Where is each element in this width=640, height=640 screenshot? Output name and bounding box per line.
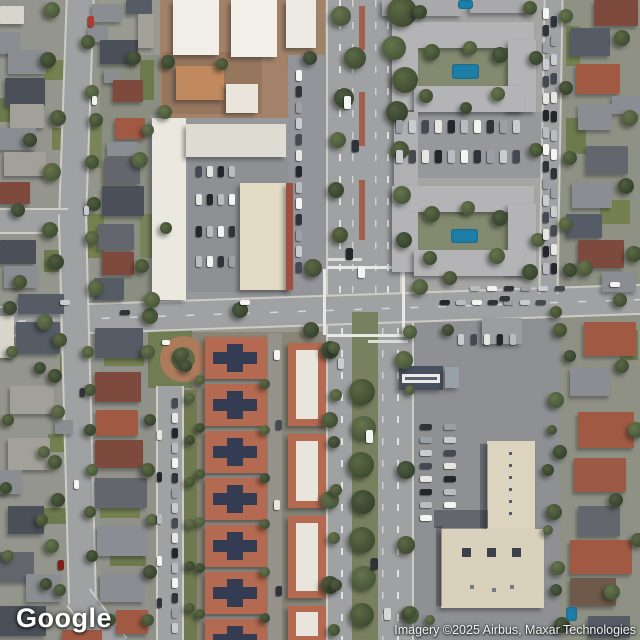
tree <box>559 9 573 23</box>
roof-detail <box>296 612 318 636</box>
house <box>55 420 73 434</box>
car <box>80 388 85 397</box>
commercial-building-edge <box>286 183 293 290</box>
car <box>58 560 64 570</box>
tree <box>330 132 346 148</box>
tree <box>403 325 417 339</box>
roof-detail <box>509 500 512 503</box>
satellite-map[interactable]: Google Imagery ©2025 Airbus, Maxar Techn… <box>0 0 640 640</box>
imagery-attribution: Imagery ©2025 Airbus, Maxar Technologies <box>394 623 636 637</box>
parked-car <box>172 458 178 468</box>
tree <box>48 254 64 270</box>
roof-detail <box>227 579 243 607</box>
tree <box>542 464 554 476</box>
parked-car <box>435 120 442 133</box>
car <box>240 300 250 305</box>
parked-car <box>420 424 432 430</box>
tree <box>185 393 195 403</box>
tree <box>609 493 623 507</box>
tree <box>84 506 96 518</box>
parked-car <box>543 110 549 121</box>
tree <box>396 232 412 248</box>
parked-car <box>157 430 162 440</box>
tree <box>48 455 62 469</box>
tree <box>424 44 440 60</box>
parked-car <box>504 286 514 291</box>
tree <box>404 606 416 618</box>
tree <box>82 346 94 358</box>
tree <box>44 2 60 18</box>
car <box>344 96 351 109</box>
tree <box>43 163 61 181</box>
parked-car <box>536 300 546 305</box>
tree <box>547 425 557 435</box>
tree <box>260 379 270 389</box>
tree <box>81 35 95 49</box>
tree <box>543 525 553 535</box>
tree <box>395 351 413 369</box>
tree <box>6 346 18 358</box>
tree <box>550 584 562 596</box>
parked-car <box>444 502 456 508</box>
parked-car <box>157 514 162 524</box>
house <box>0 182 30 204</box>
parked-car <box>500 150 507 163</box>
tree <box>523 1 537 15</box>
tree <box>529 51 543 65</box>
car <box>274 350 280 360</box>
parked-car <box>420 502 432 508</box>
tree <box>42 222 58 238</box>
parked-car <box>296 134 302 145</box>
tree <box>48 369 62 383</box>
parked-car <box>551 149 557 160</box>
swimming-pool <box>451 229 478 243</box>
parked-car <box>218 226 224 237</box>
parked-car <box>296 246 302 257</box>
tree <box>38 446 50 458</box>
tree <box>260 473 270 483</box>
tree <box>195 517 205 527</box>
parked-car <box>470 286 480 291</box>
house <box>95 440 143 468</box>
tree <box>551 561 565 575</box>
tree <box>45 539 59 553</box>
parked-car <box>551 111 557 122</box>
parked-car <box>296 262 302 273</box>
tree <box>23 133 37 147</box>
parked-car <box>543 195 549 206</box>
parked-car <box>551 16 557 27</box>
tree <box>303 51 317 65</box>
house <box>5 78 45 106</box>
construction-building <box>286 0 316 48</box>
parked-car <box>461 120 468 133</box>
road-marking <box>327 334 411 337</box>
parked-car <box>420 437 432 443</box>
tree <box>40 52 56 68</box>
road-marking <box>368 340 408 343</box>
swimming-pool <box>458 0 473 9</box>
parked-car <box>172 488 178 498</box>
parked-car <box>513 150 520 163</box>
tree <box>491 87 505 101</box>
parked-car <box>422 150 429 163</box>
white-building <box>226 84 258 113</box>
house <box>576 64 620 94</box>
tree <box>460 102 472 114</box>
swimming-pool <box>566 607 577 621</box>
house <box>95 478 147 508</box>
tree <box>330 484 342 496</box>
parked-car <box>474 150 481 163</box>
tree <box>2 414 14 426</box>
car <box>274 500 280 510</box>
tree <box>330 389 342 401</box>
tree <box>413 5 427 19</box>
car <box>346 248 353 260</box>
roof-detail <box>510 585 514 589</box>
parked-car <box>196 226 202 237</box>
tree <box>143 565 157 579</box>
tree <box>328 182 344 198</box>
roof-detail <box>296 350 318 419</box>
roof-detail <box>436 526 442 606</box>
roof-detail <box>227 626 243 640</box>
small-building <box>445 367 459 388</box>
parked-car <box>396 120 403 133</box>
tree <box>303 322 319 338</box>
tree <box>37 314 53 330</box>
tree <box>522 264 538 280</box>
tree <box>489 248 505 264</box>
tree <box>577 260 593 276</box>
tree <box>563 263 577 277</box>
tree <box>141 463 155 477</box>
parked-car <box>551 225 557 236</box>
parked-car <box>444 437 456 443</box>
parked-car <box>172 503 178 513</box>
parked-car <box>207 226 213 237</box>
tree <box>564 350 576 362</box>
road-marking <box>328 258 362 261</box>
roof-detail <box>487 548 496 557</box>
parked-car <box>172 563 178 573</box>
road-marking <box>402 272 405 334</box>
house <box>586 146 628 174</box>
parked-car <box>157 598 162 608</box>
office-building <box>152 118 186 300</box>
tree <box>332 227 348 243</box>
tree <box>40 578 52 590</box>
parked-car <box>229 194 235 205</box>
tree <box>382 36 406 60</box>
parked-car <box>513 120 520 133</box>
retail-building <box>441 529 544 608</box>
house <box>115 118 145 139</box>
parked-car <box>520 300 530 305</box>
tree <box>88 280 104 296</box>
tree <box>461 201 475 215</box>
parked-car <box>488 300 498 305</box>
parked-car <box>543 59 549 70</box>
roof-detail <box>509 476 512 479</box>
car <box>366 430 373 443</box>
tree <box>36 514 48 526</box>
tree <box>127 51 141 65</box>
tree <box>0 482 12 494</box>
parked-car <box>448 150 455 163</box>
tile-roof-building <box>176 66 224 100</box>
tree <box>412 279 428 295</box>
roof-detail <box>509 488 512 491</box>
house <box>572 182 612 208</box>
parked-car <box>172 443 178 453</box>
parked-car <box>472 300 482 305</box>
parked-car <box>461 150 468 163</box>
parked-car <box>172 398 178 408</box>
parked-car <box>543 246 549 257</box>
car <box>60 300 70 305</box>
car <box>500 296 510 301</box>
tree <box>492 210 508 226</box>
tree <box>195 563 205 573</box>
parked-car <box>420 515 432 521</box>
road-marking <box>359 92 365 146</box>
tree <box>216 58 228 70</box>
parked-car <box>435 150 442 163</box>
tree <box>85 231 99 245</box>
tree <box>350 603 374 627</box>
tree <box>604 584 620 600</box>
tree <box>419 89 433 103</box>
tree <box>53 333 67 347</box>
house <box>570 368 610 396</box>
tree <box>144 292 160 308</box>
parked-car <box>296 230 302 241</box>
house <box>95 372 141 402</box>
tree <box>51 493 65 507</box>
tree <box>11 203 25 217</box>
parked-car <box>296 182 302 193</box>
tree <box>559 217 573 231</box>
tree <box>89 113 103 127</box>
house <box>102 252 134 275</box>
car <box>338 358 344 369</box>
house <box>578 506 620 536</box>
tree <box>393 186 411 204</box>
parked-car <box>296 198 302 209</box>
office-building <box>186 124 286 157</box>
parked-car <box>172 593 178 603</box>
tree <box>615 359 629 373</box>
tree <box>185 603 195 613</box>
tree <box>85 155 99 169</box>
tree <box>50 110 66 126</box>
roof-detail <box>509 452 512 455</box>
tree <box>328 532 340 544</box>
house <box>92 4 122 22</box>
car <box>84 206 89 215</box>
parked-car <box>420 450 432 456</box>
parked-car <box>551 54 557 65</box>
parked-car <box>543 144 549 155</box>
tree <box>141 345 155 359</box>
parked-car <box>420 489 432 495</box>
tree <box>397 461 415 479</box>
parked-car <box>543 229 549 240</box>
house <box>4 152 46 176</box>
tree <box>559 81 573 95</box>
tree <box>351 490 375 514</box>
car <box>92 96 97 105</box>
tree <box>195 469 205 479</box>
house <box>100 574 144 602</box>
tree <box>553 323 567 337</box>
house <box>0 6 24 24</box>
swimming-pool <box>452 64 479 79</box>
roof-detail <box>296 441 318 501</box>
tree <box>492 47 508 63</box>
roof-detail <box>227 344 243 372</box>
house <box>570 28 610 56</box>
tree <box>142 614 154 626</box>
car <box>352 140 359 152</box>
car <box>276 420 282 430</box>
tree <box>260 425 270 435</box>
car <box>358 266 365 278</box>
tree <box>144 414 156 426</box>
parked-car <box>551 206 557 217</box>
tree <box>161 55 175 69</box>
tree <box>553 445 567 459</box>
roof-detail <box>296 523 318 591</box>
tree <box>195 375 205 385</box>
parked-car <box>555 286 565 291</box>
parked-car <box>551 187 557 198</box>
parked-car <box>543 8 549 19</box>
roof-detail <box>470 585 474 589</box>
apartment-building <box>470 0 528 13</box>
car <box>88 16 94 27</box>
roof-detail <box>480 444 488 528</box>
parked-car <box>543 127 549 138</box>
car <box>610 282 620 287</box>
car <box>162 340 170 345</box>
car <box>384 608 391 620</box>
tree <box>628 422 640 438</box>
parked-car <box>543 178 549 189</box>
parked-car <box>487 150 494 163</box>
parked-car <box>444 489 456 495</box>
parked-car <box>551 263 557 274</box>
car <box>276 586 282 596</box>
parked-car <box>172 428 178 438</box>
parked-car <box>396 150 403 163</box>
house <box>113 80 143 102</box>
parked-car <box>500 120 507 133</box>
construction-building <box>231 0 277 57</box>
parked-car <box>172 548 178 558</box>
parked-car <box>296 150 302 161</box>
parked-car <box>543 263 549 274</box>
parked-car <box>218 166 224 177</box>
roof-detail <box>462 548 471 557</box>
tree <box>405 385 415 395</box>
road-marking <box>359 180 365 240</box>
tree <box>260 567 270 577</box>
parked-car <box>456 300 466 305</box>
tree <box>160 222 172 234</box>
parked-car <box>229 256 235 267</box>
parked-car <box>196 256 202 267</box>
tree <box>135 259 149 273</box>
parked-car <box>196 194 202 205</box>
tree <box>185 561 195 571</box>
house <box>102 186 144 216</box>
parked-car <box>551 35 557 46</box>
house <box>138 14 154 48</box>
parked-car <box>218 256 224 267</box>
parked-car <box>172 518 178 528</box>
parked-car <box>471 334 477 345</box>
tree <box>13 275 27 289</box>
parked-car <box>543 161 549 172</box>
road-marking <box>359 6 365 50</box>
house <box>594 0 638 26</box>
tree <box>423 251 437 265</box>
roof-detail <box>227 438 243 466</box>
house <box>96 410 138 436</box>
house <box>97 526 147 556</box>
tree <box>86 464 98 476</box>
tree <box>622 110 638 126</box>
tree <box>618 178 634 194</box>
car <box>371 558 378 570</box>
parked-car <box>497 334 503 345</box>
tree <box>3 301 17 315</box>
tree <box>180 360 192 372</box>
parked-car <box>538 286 548 291</box>
parked-car <box>420 476 432 482</box>
parked-car <box>487 120 494 133</box>
road-marking <box>323 269 326 335</box>
parked-car <box>551 73 557 84</box>
car <box>120 310 130 315</box>
parked-car <box>551 168 557 179</box>
car <box>74 480 79 489</box>
parked-car <box>444 463 456 469</box>
parked-car <box>296 102 302 113</box>
parked-car <box>551 92 557 103</box>
parked-car <box>551 244 557 255</box>
parked-car <box>172 413 178 423</box>
roof-detail <box>227 485 243 513</box>
parked-car <box>296 166 302 177</box>
parked-car <box>448 120 455 133</box>
tree <box>529 143 543 157</box>
tree <box>442 324 454 336</box>
tree <box>2 550 14 562</box>
google-logo[interactable]: Google <box>16 603 112 634</box>
parked-car <box>444 424 456 430</box>
tree <box>87 197 101 211</box>
parked-car <box>207 194 213 205</box>
house <box>95 328 143 358</box>
tree <box>158 105 172 119</box>
parked-car <box>409 150 416 163</box>
parked-car <box>543 76 549 87</box>
